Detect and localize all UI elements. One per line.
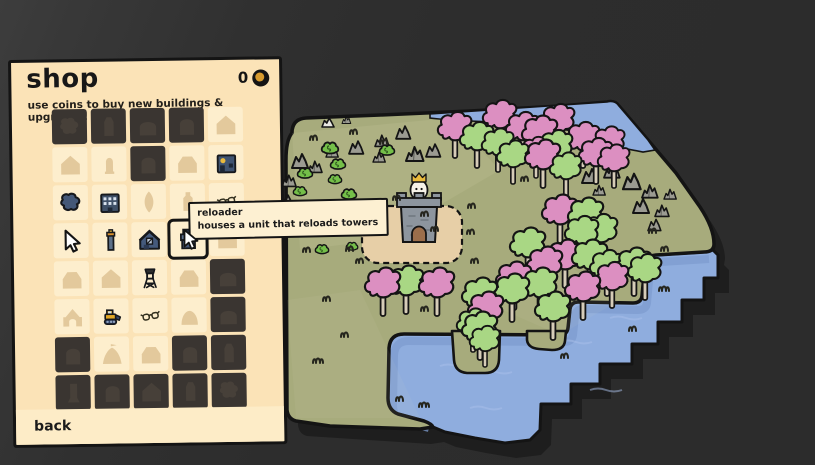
castle-door [412,227,426,243]
dome-icon [213,262,241,290]
shop-cell-r2c3[interactable] [130,146,165,181]
shop-cell-r3c2[interactable] [92,184,127,219]
house2-icon [57,264,85,292]
item-tooltip: reloader houses a unit that reloads towe… [188,198,388,240]
dome-icon [133,111,161,139]
blue_house-icon [212,148,240,176]
shop-cell-r7c2[interactable] [94,336,129,371]
shop-cell-r6c2[interactable] [93,298,128,333]
well-icon [58,302,86,330]
shop-cell-r5c3[interactable] [132,260,167,295]
house2-icon [173,149,201,177]
shop-cell-r2c2[interactable] [91,146,126,181]
coin-counter: 0 [238,68,270,86]
pillar-icon [59,378,87,406]
shop-cell-r4c2[interactable] [92,222,127,257]
shop-panel: shop use coins to buy new buildings & up… [8,56,287,448]
glasses-icon [138,303,162,327]
mound-icon [175,301,203,329]
shop-cell-r8c1[interactable] [55,375,90,410]
shop-cell-r1c1[interactable] [52,109,87,144]
shop-cell-r2c5[interactable] [208,145,243,180]
tree-canopy [595,262,628,290]
shop-grid [52,107,247,411]
shop-cell-r5c1[interactable] [54,261,89,296]
arch-icon [172,111,200,139]
shop-cell-r8c5[interactable] [211,373,246,408]
shop-cell-r5c5[interactable] [210,259,245,294]
bush [293,187,306,196]
shop-cell-r8c2[interactable] [94,374,129,409]
shop-cell-r7c1[interactable] [55,337,90,372]
shop-cell-r7c4[interactable] [172,335,207,370]
tooltip-description: houses a unit that reloads towers [197,216,378,233]
shop-cell-r1c3[interactable] [130,108,165,143]
house-icon [137,377,165,405]
apartments-icon [95,188,123,216]
tree-canopy [535,292,570,322]
blob-icon [215,376,243,404]
tree-canopy [598,144,630,171]
shop-cell-r6c3[interactable] [132,298,167,333]
bush [322,143,339,154]
tree-canopy [628,254,661,282]
shop-cell-r4c1[interactable] [53,223,88,258]
bush [380,145,395,155]
chimney-icon [96,226,124,254]
castle-parapet [397,198,441,207]
tree-canopy [550,152,582,179]
blob-icon [55,112,83,140]
grass-bump [527,331,566,350]
arch-icon [58,340,86,368]
shop-cell-r2c4[interactable] [169,145,204,180]
arch-icon [98,378,126,406]
shop-cell-r7c5[interactable] [211,335,246,370]
cursor-icon [57,226,85,254]
dome-icon [214,300,242,328]
coin-count: 0 [238,69,249,87]
shop-cell-r2c1[interactable] [52,147,87,182]
house2-icon [174,263,202,291]
shop-cell-r3c1[interactable] [53,185,88,220]
tree-canopy [419,268,454,298]
coin-icon [252,69,269,86]
shop-title: shop [26,64,99,95]
bush [298,168,313,178]
tower-icon [94,112,122,140]
shop-cell-r3c3[interactable] [131,184,166,219]
king-eye [415,188,417,190]
tree-canopy [497,140,529,167]
shop-cell-r6c1[interactable] [54,299,89,334]
bulldozer-icon [97,302,125,330]
back-button[interactable]: back [16,406,284,445]
house-icon [96,264,124,292]
pond-icon [56,188,84,216]
barn-icon [135,225,163,253]
house2-icon [136,339,164,367]
tree-canopy [470,326,500,351]
bush [315,245,328,254]
watchtower-icon [135,263,163,291]
house-icon [211,110,239,138]
bush [331,159,346,169]
shop-cell-r6c4[interactable] [171,297,206,332]
shop-cell-r7c3[interactable] [133,336,168,371]
tent-icon [97,340,125,368]
tree-canopy [565,272,600,302]
shop-cell-r4c3[interactable] [131,222,166,257]
shop-cell-r1c4[interactable] [169,107,204,142]
shop-cell-r1c5[interactable] [208,107,243,142]
house-icon [56,150,84,178]
king-eye [421,188,423,190]
shop-cell-r6c5[interactable] [210,297,245,332]
tower-icon [214,338,242,366]
bush [328,175,341,184]
shop-cell-r8c3[interactable] [133,374,168,409]
arch-icon [175,339,203,367]
tree-canopy [365,268,400,298]
statue-icon [95,150,123,178]
shop-cell-r5c4[interactable] [171,259,206,294]
shop-cell-r1c2[interactable] [91,108,126,143]
arch-icon [134,149,162,177]
mouse-cursor-icon [183,229,200,253]
leaf-icon [134,187,162,215]
tower-icon [176,377,204,405]
shop-cell-r8c4[interactable] [172,373,207,408]
shop-cell-r5c2[interactable] [93,260,128,295]
